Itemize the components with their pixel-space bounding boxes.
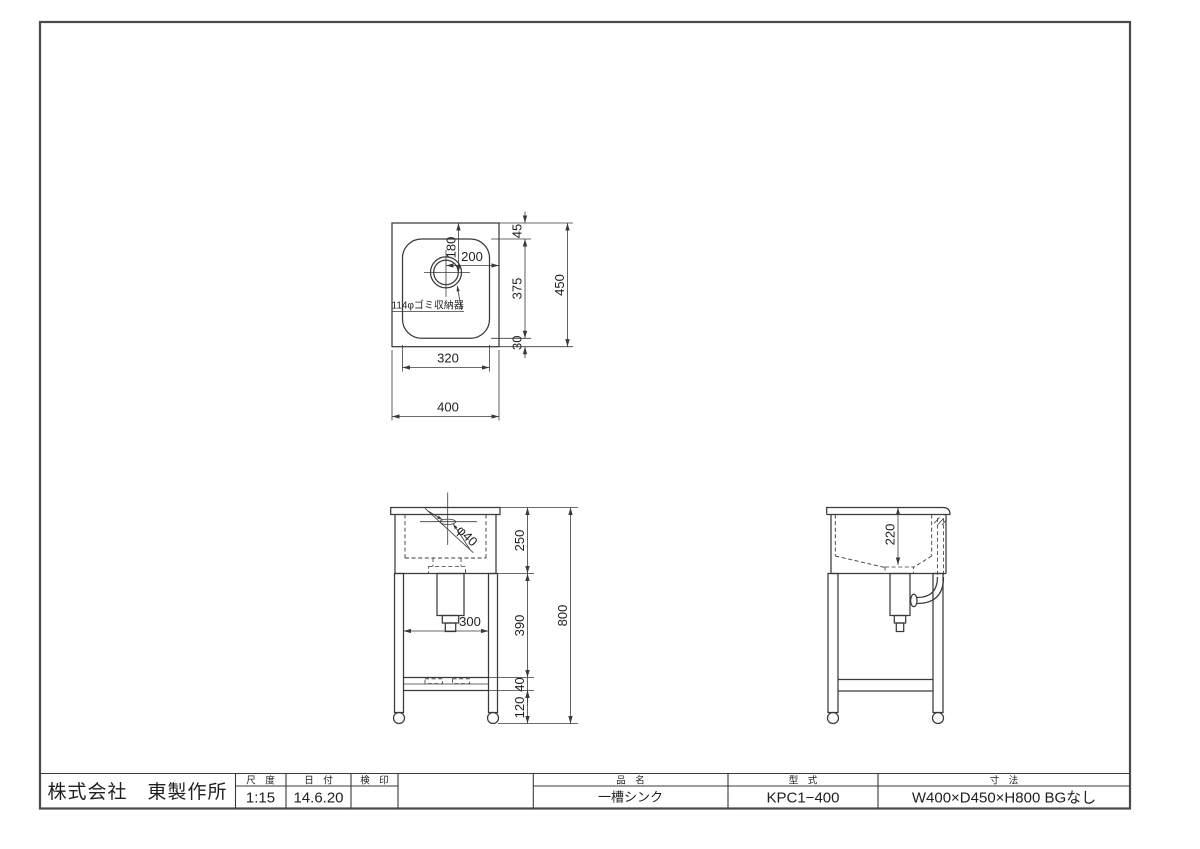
front-leg-right bbox=[489, 574, 498, 713]
date-label: 日 付 bbox=[304, 776, 333, 787]
dim-45: 45 bbox=[510, 224, 525, 238]
adjustable-foot bbox=[488, 713, 499, 724]
title-block: 株式会社 東製作所 尺 度 日 付 検 印 品 名 型 式 寸 法 1:15 1… bbox=[40, 774, 1130, 809]
model-value: KPC1−400 bbox=[767, 790, 840, 807]
dim-300: 300 bbox=[459, 614, 481, 629]
dim-320: 320 bbox=[437, 351, 459, 366]
dim-220: 220 bbox=[883, 524, 898, 546]
side-drain-trap bbox=[890, 574, 910, 616]
date-value: 14.6.20 bbox=[293, 790, 343, 807]
dim-180: 180 bbox=[444, 237, 459, 259]
dim-120: 120 bbox=[512, 697, 527, 719]
drain-flange-hidden bbox=[429, 567, 466, 574]
scale-value: 1:15 bbox=[246, 790, 275, 807]
size-value: W400×D450×H800 BGなし bbox=[912, 790, 1096, 807]
front-view: φ40 300 250 390 40 120 800 bbox=[391, 493, 578, 724]
drain-trap-body bbox=[437, 574, 464, 616]
company-name: 株式会社 東製作所 bbox=[47, 781, 227, 803]
adjustable-foot bbox=[828, 713, 839, 724]
hose-fitting bbox=[911, 594, 917, 606]
side-view: 220 bbox=[827, 508, 950, 724]
product-value: 一槽シンク bbox=[598, 790, 663, 805]
scale-label: 尺 度 bbox=[246, 775, 275, 787]
dim-375: 375 bbox=[510, 278, 525, 300]
adjustable-foot bbox=[394, 713, 405, 724]
adjustable-foot bbox=[933, 713, 944, 724]
drain-outlet bbox=[445, 623, 455, 632]
drain-note-label: 114φゴミ収納器 bbox=[392, 299, 464, 312]
dim-200: 200 bbox=[461, 249, 483, 264]
side-flange-hidden bbox=[885, 567, 913, 574]
plan-view: 114φゴミ収納器 180 200 45 375 30 450 320 bbox=[392, 212, 574, 421]
overflow-hose bbox=[917, 577, 938, 598]
product-label: 品 名 bbox=[616, 775, 645, 787]
front-leg-left bbox=[395, 574, 404, 713]
side-leg-left bbox=[828, 574, 838, 713]
dim-400: 400 bbox=[437, 400, 459, 415]
side-rim bbox=[827, 508, 950, 515]
dim-800: 800 bbox=[555, 605, 570, 627]
side-leg-right bbox=[933, 574, 943, 713]
dim-450: 450 bbox=[552, 274, 567, 296]
front-rim bbox=[391, 508, 500, 515]
sheet-border bbox=[40, 22, 1130, 809]
dim-250: 250 bbox=[512, 530, 527, 552]
dim-390: 390 bbox=[512, 615, 527, 637]
dim-40: 40 bbox=[512, 677, 527, 691]
dim-30: 30 bbox=[510, 336, 525, 350]
size-label: 寸 法 bbox=[990, 775, 1019, 787]
dim-phi40: φ40 bbox=[454, 522, 481, 549]
drawing-sheet: 114φゴミ収納器 180 200 45 375 30 450 320 bbox=[0, 0, 1200, 849]
stamp-label: 検 印 bbox=[360, 775, 389, 787]
model-label: 型 式 bbox=[789, 775, 818, 787]
